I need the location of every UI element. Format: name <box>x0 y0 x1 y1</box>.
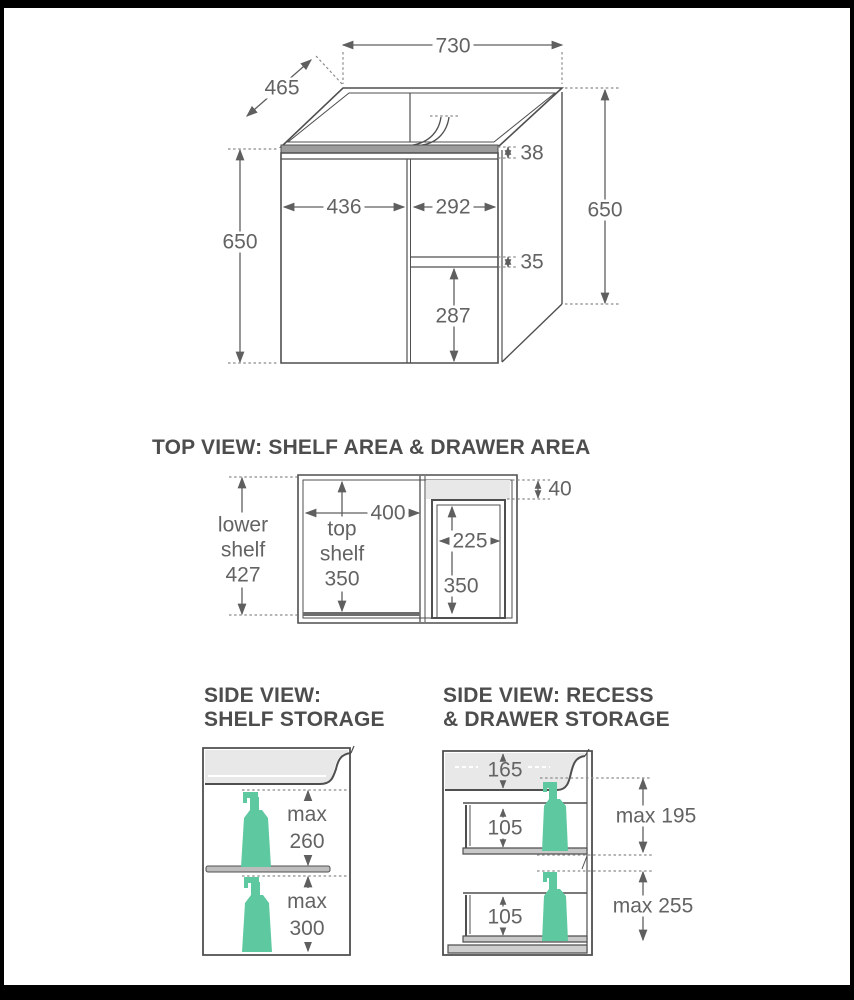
dim-drawer-front: 287 <box>432 306 473 327</box>
dim-max-195: max 195 <box>613 806 700 827</box>
dim-drawer-width: 292 <box>432 197 473 218</box>
side-view-drawer-lines <box>443 749 652 955</box>
dim-height-left: 650 <box>219 232 260 253</box>
dim-door-width: 436 <box>323 197 364 218</box>
side-shelf-title: SIDE VIEW:SHELF STORAGE <box>204 684 385 732</box>
dim-topview-drawer-depth: 350 <box>440 576 481 597</box>
top-view-title: TOP VIEW: SHELF AREA & DRAWER AREA <box>152 436 591 460</box>
dim-lower-drawer-105: 105 <box>484 907 525 928</box>
dim-upper-drawer-105: 105 <box>484 818 525 839</box>
side-view-shelf-lines <box>203 746 354 955</box>
dim-depth: 465 <box>261 78 302 99</box>
cabinet-dimension-diagram <box>0 0 854 1000</box>
label-lower-shelf: lowershelf427 <box>215 513 271 588</box>
dim-top-rail: 38 <box>520 143 543 164</box>
label-top-shelf: topshelf350 <box>317 517 367 592</box>
page: 730 465 650 650 436 292 38 35 287 TOP VI… <box>0 0 854 1000</box>
side-drawer-title: SIDE VIEW: RECESS& DRAWER STORAGE <box>443 684 670 732</box>
dim-recess-depth: 40 <box>548 479 571 500</box>
dim-recess-165: 165 <box>487 760 522 781</box>
bottle-icon <box>542 782 568 851</box>
bottle-icon <box>542 872 568 941</box>
dim-max-260: max260 <box>284 801 330 855</box>
dim-drawer-gap: 35 <box>520 252 543 273</box>
dim-shelf-width: 400 <box>367 503 408 524</box>
dim-top-width: 730 <box>432 36 473 57</box>
bottle-icon <box>242 877 272 952</box>
bottle-icon <box>241 792 271 867</box>
dim-max-300: max300 <box>284 888 330 942</box>
dim-max-255: max 255 <box>610 896 697 917</box>
dim-topview-drawer-width: 225 <box>449 531 490 552</box>
dim-height-right: 650 <box>584 200 625 221</box>
top-view-lines <box>229 475 550 623</box>
